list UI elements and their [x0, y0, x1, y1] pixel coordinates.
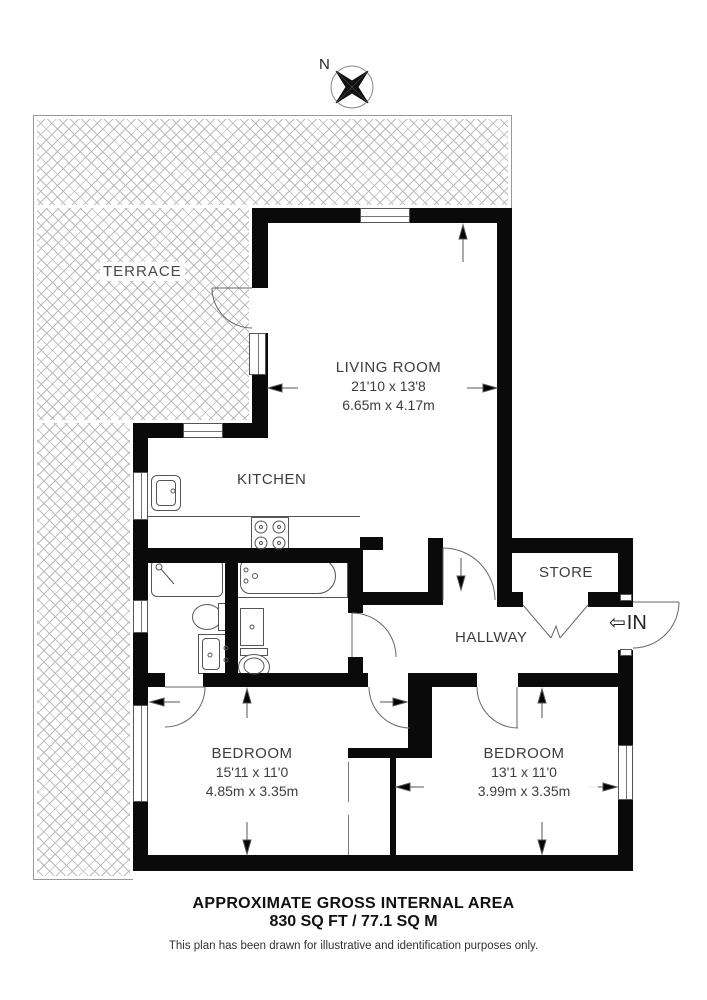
hallway-label: HALLWAY — [452, 628, 530, 647]
room-name: LIVING ROOM — [316, 358, 461, 377]
fixture-details — [156, 489, 285, 674]
footer: APPROXIMATE GROSS INTERNAL AREA 830 SQ F… — [0, 895, 707, 952]
store-label: STORE — [536, 563, 596, 582]
room-dims-metric: 3.99m x 3.35m — [453, 782, 595, 801]
terrace-label: TERRACE — [100, 262, 185, 281]
room-name: BEDROOM — [453, 744, 595, 763]
store-double-doors — [523, 605, 588, 638]
linework-layer — [0, 0, 707, 1000]
bedroom-right-label: BEDROOM 13'1 x 11'0 3.99m x 3.35m — [450, 744, 598, 801]
bedroom-left-label: BEDROOM 15'11 x 11'0 4.85m x 3.35m — [178, 744, 326, 801]
entrance-arrow-icon: ⇦ — [609, 613, 626, 633]
door-arcs — [165, 288, 679, 728]
kitchen-hall-door-arc — [443, 548, 495, 600]
entrance-text: IN — [627, 614, 647, 633]
kitchen-label: KITCHEN — [234, 470, 309, 489]
compass-north-label: N — [316, 55, 333, 74]
floorplan: N TERRACE LIVING ROOM 21'10 x 13'8 6.65m… — [0, 0, 707, 1000]
ensuite-door-arc — [165, 687, 205, 727]
compass-icon — [331, 66, 373, 108]
terrace-door-arc — [212, 288, 252, 328]
room-dims-imperial: 21'10 x 13'8 — [316, 377, 461, 396]
room-dims-metric: 6.65m x 4.17m — [316, 396, 461, 415]
bathroom-door-arc — [352, 613, 396, 657]
bedroom-right-door-arc — [477, 687, 518, 728]
room-dims-imperial: 15'11 x 11'0 — [181, 763, 323, 782]
entrance-in-label: ⇦ IN — [606, 613, 650, 633]
room-dims-imperial: 13'1 x 11'0 — [453, 763, 595, 782]
living-room-label: LIVING ROOM 21'10 x 13'8 6.65m x 4.17m — [313, 358, 464, 415]
room-name: BEDROOM — [181, 744, 323, 763]
footer-title: APPROXIMATE GROSS INTERNAL AREA — [0, 895, 707, 913]
footer-disclaimer: This plan has been drawn for illustrativ… — [0, 940, 707, 952]
footer-area: 830 SQ FT / 77.1 SQ M — [0, 913, 707, 931]
room-dims-metric: 4.85m x 3.35m — [181, 782, 323, 801]
bedroom-left-door-arc — [369, 687, 410, 728]
